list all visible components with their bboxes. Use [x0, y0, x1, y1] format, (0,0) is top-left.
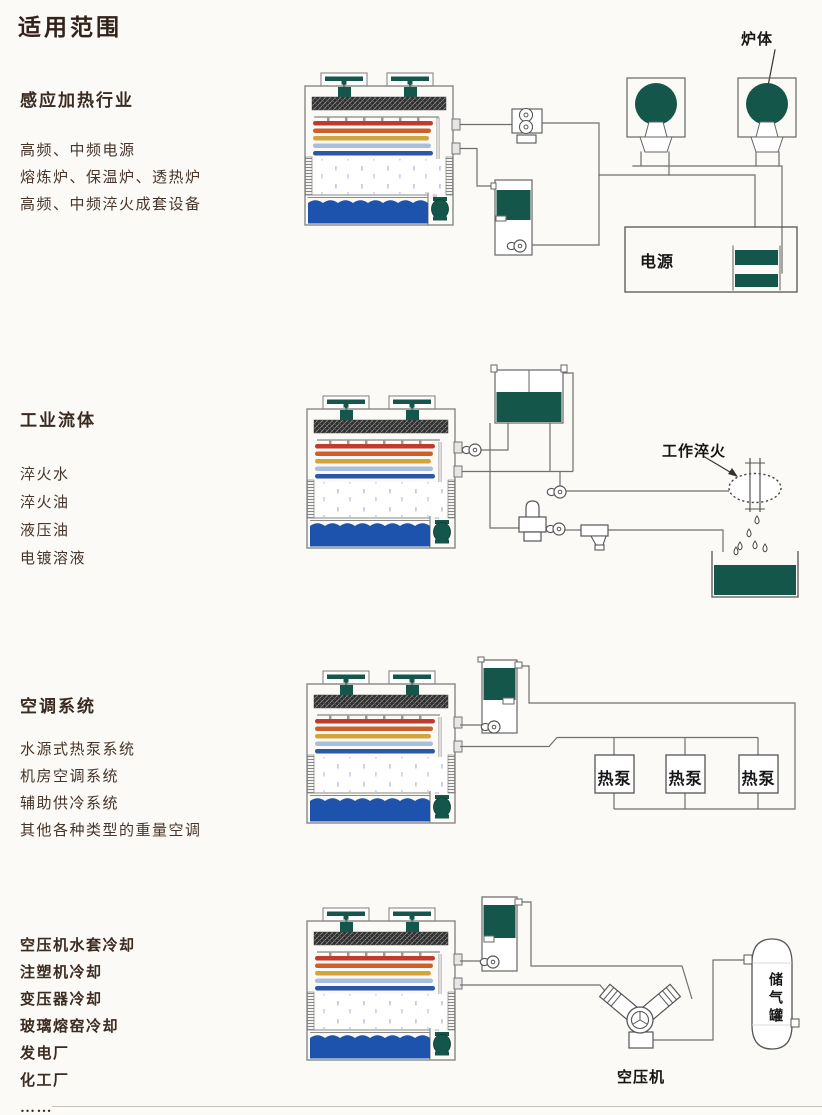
- nozzle-icon: [581, 525, 608, 550]
- cooling-tower-icon: [307, 671, 462, 823]
- quench-ring-icon: [703, 456, 781, 512]
- fluid-tank-icon: [491, 365, 567, 423]
- diagram-compressor: [307, 897, 799, 1060]
- pump-icon: [547, 486, 566, 498]
- work-quench-label: 工作淬火: [662, 440, 726, 461]
- air-tank-label: 储气罐: [764, 972, 784, 1034]
- pump-icon: [546, 523, 565, 535]
- water-tank-icon: [491, 180, 532, 255]
- quench-tank-icon: [712, 551, 798, 597]
- air-compressor-icon: [600, 984, 681, 1048]
- heat-pump-label: 热泵: [666, 765, 705, 789]
- cooling-tower-icon: [307, 908, 462, 1060]
- diagram-induction-heating: [305, 50, 797, 292]
- diagram-industrial-fluids: [307, 365, 798, 597]
- furnace-icon: [738, 78, 796, 152]
- water-tank-icon: [480, 897, 522, 971]
- catalog-page: 适用范围 感应加热行业 高频、中频电源 熔炼炉、保温炉、透热炉 高频、中频淬火成…: [0, 0, 822, 1115]
- heat-pump-label: 热泵: [739, 765, 778, 789]
- cooling-tower-icon: [305, 73, 460, 225]
- power-supply-label: 电源: [640, 248, 674, 272]
- pump-unit-icon: [512, 109, 542, 144]
- furnace-body-label: 炉体: [741, 28, 773, 49]
- air-compressor-label: 空压机: [617, 1066, 665, 1087]
- heat-pump-label: 热泵: [595, 765, 634, 789]
- pump-icon: [462, 444, 481, 456]
- water-tank-icon: [478, 657, 522, 733]
- cooling-tower-icon: [307, 396, 462, 548]
- diagram-hvac: [307, 657, 795, 823]
- water-drops-icon: [734, 516, 767, 555]
- valve-icon: [519, 501, 546, 541]
- page-edge-line: [52, 1106, 822, 1107]
- diagram-canvas: [0, 0, 822, 1115]
- furnace-icon: [627, 78, 685, 152]
